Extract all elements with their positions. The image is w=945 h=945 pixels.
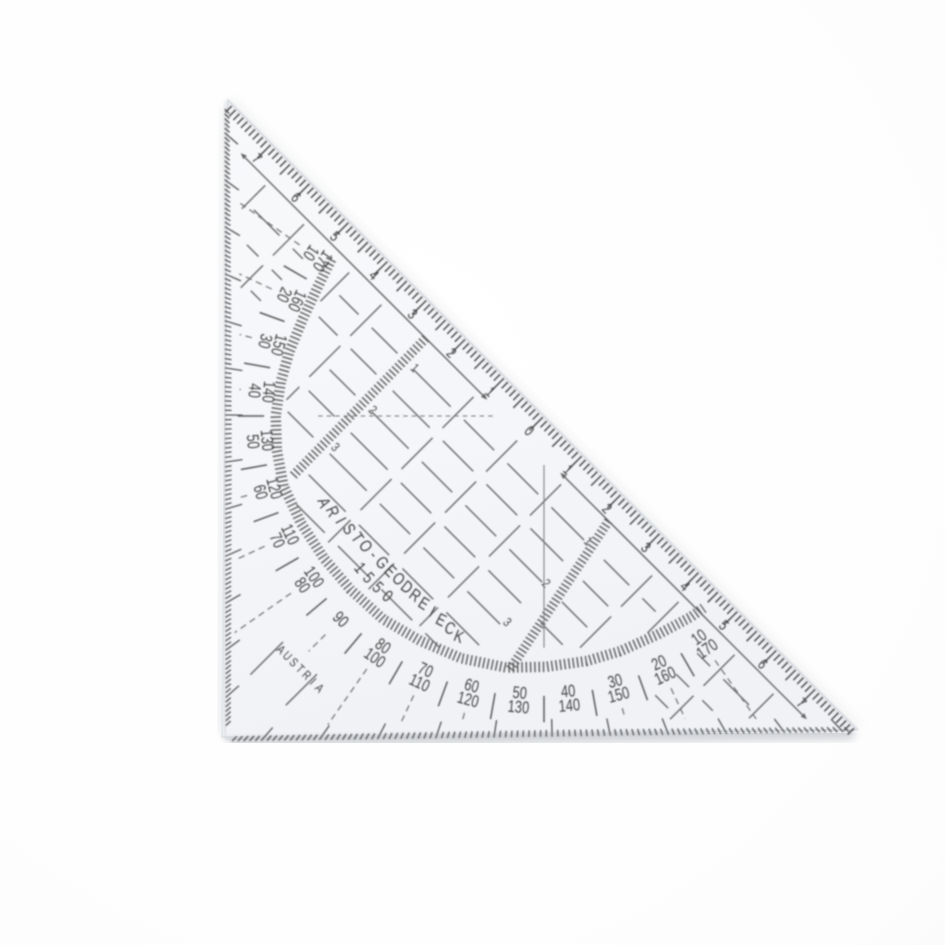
svg-text:50: 50	[242, 434, 262, 450]
svg-text:40: 40	[244, 383, 264, 399]
svg-text:140: 140	[558, 695, 581, 716]
svg-text:130: 130	[507, 697, 530, 718]
